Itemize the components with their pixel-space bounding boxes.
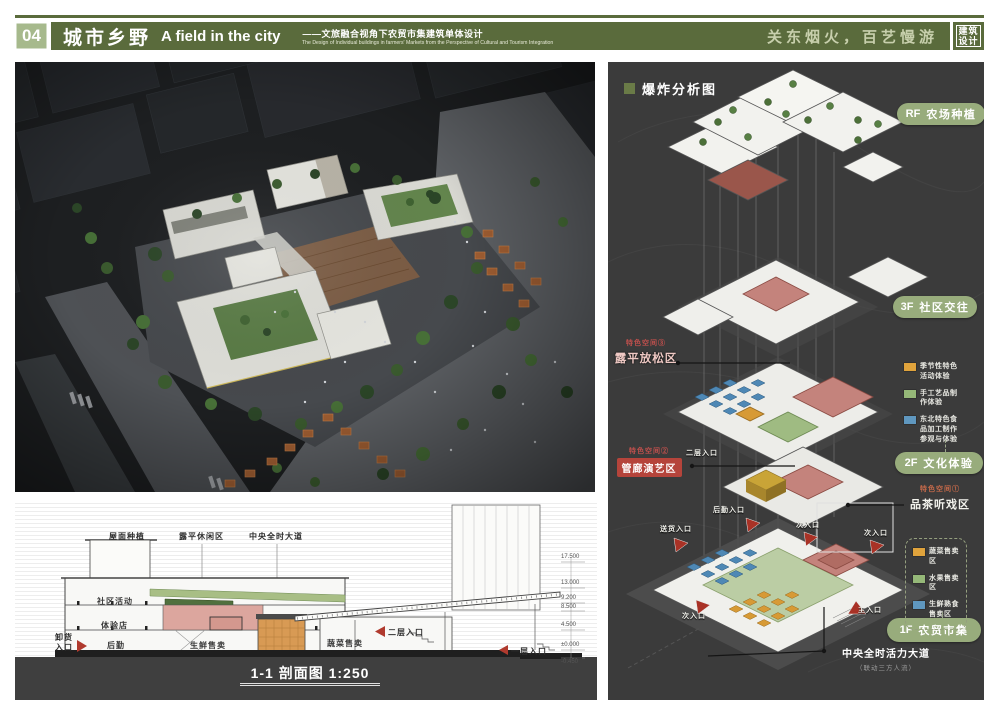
legend-2f: 季节性特色活动体验 手工艺品制作体验 东北特色食品加工制作参观与体验 [904,362,966,452]
elevation-17500: 17.500 [561,554,579,560]
room-community-activity: 社区活动 [97,596,133,607]
title-bullet-square [624,83,635,94]
elevation-13000: 13.000 [561,580,579,586]
second-floor-entrance-label: 二层入口 [388,627,424,638]
room-fresh-food: 生鲜售卖 [190,640,226,651]
entrance-label-second-floor: 二层入口 [686,448,718,458]
title-chinese: 城市乡野 [63,23,151,50]
section-label-roof-planting: 屋面种植 [109,531,145,542]
unloading-entrance-label-line2: 入口 [55,642,73,653]
subtitle-english: The Design of Individual buildings in fa… [302,40,553,45]
floor-pill-2f: 2F 文化体验 [895,452,983,474]
header-band: 城市乡野 A field in the city ——文旅融合视角下农贸市集建筑… [51,22,950,50]
f3-plates [663,257,928,344]
section-title: 1-1 剖面图 1:250 [195,663,425,683]
floor-pill-3f: 3F 社区交往 [893,296,977,318]
section-title-underline [240,683,380,686]
aerial-render-image [15,62,595,492]
legend-chip-orange [904,363,916,371]
exploded-title-text: 爆炸分析图 [642,79,717,98]
central-avenue-annotation: 中央全时活力大道 （联动三方人流） [828,645,944,672]
legend-chip-green [904,390,916,398]
elevation-minus-0450: -0.450 [561,659,578,665]
room-vegetable: 蔬菜售卖 [327,638,363,649]
legend-2f-item-food-process: 东北特色食品加工制作参观与体验 [904,415,966,444]
elevation-9200: 9.200 [561,595,576,601]
room-logistics: 后勤 [107,640,125,651]
title-english: A field in the city [161,28,280,45]
presentation-board: 04 城市乡野 A field in the city ——文旅融合视角下农贸市… [0,0,999,708]
badge-line-1: 建筑 [958,26,978,36]
legend-1f-item-fruit: 水果售卖区 [913,574,961,594]
aerial-render-illustration [15,62,595,492]
exploded-analysis-panel: 爆炸分析图 RF 农场种植 3F 社区交往 2F 文化体验 1F 农贸市集 季节… [608,62,984,700]
entrance-label-secondary-3: 次入口 [682,611,706,621]
legend-2f-item-seasonal: 季节性特色活动体验 [904,362,966,382]
room-experience-shop: 体验店 [101,620,128,631]
special-space-3: 特色空间③ 露平放松区 [610,338,682,366]
elevation-0000: ±0.000 [561,642,579,648]
elevation-4500: 4.500 [561,622,576,628]
discipline-badge: 建筑 设计 [953,22,984,50]
subtitle-chinese: ——文旅融合视角下农贸市集建筑单体设计 [302,27,594,40]
section-label-central-avenue: 中央全时大道 [249,531,303,542]
entrance-label-logistics: 后勤入口 [713,505,745,515]
f2-upper-plate [678,362,878,462]
legend-2f-connector [945,440,946,452]
elevation-8500: 8.500 [561,604,576,610]
legend-1f-item-vegetable: 蔬菜售卖区 [913,547,961,567]
entrance-label-main: 主入口 [858,605,882,615]
section-drawing-panel: 屋面种植 露平休闲区 中央全时大道 社区活动 体验店 后勤 生鲜售卖 蔬菜售卖 … [15,500,597,700]
entrance-label-secondary-1: 次入口 [796,520,820,530]
legend-chip-blue [904,416,916,424]
legend-1f: 蔬菜售卖区 水果售卖区 生鲜熟食售卖区 [905,538,967,630]
section-label-terrace-leisure: 露平休闲区 [179,531,224,542]
floor-pill-rf: RF 农场种植 [897,103,984,125]
special-space-2: 特色空间② 管廊演艺区 [616,446,682,477]
slogan-text: 关东烟火，百艺慢游 [767,26,938,47]
legend-1f-connector [942,612,943,618]
badge-line-2: 设计 [958,36,978,46]
first-floor-entrance-label: 一层入口 [511,646,547,657]
exploded-panel-title: 爆炸分析图 [624,79,717,98]
entrance-label-delivery: 送货入口 [660,524,692,534]
page-number: 04 [15,22,48,50]
special-space-1: 特色空间① 品茶听戏区 [905,484,975,512]
legend-chip-green [913,575,925,583]
header-top-rule [15,15,984,18]
subtitle-block: ——文旅融合视角下农贸市集建筑单体设计 The Design of Indivi… [302,27,594,46]
legend-2f-item-handicraft: 手工艺品制作体验 [904,389,966,409]
legend-chip-orange [913,548,925,556]
legend-1f-item-fresh: 生鲜熟食售卖区 [913,600,961,620]
legend-chip-blue [913,601,925,609]
entrance-label-secondary-2: 次入口 [864,528,888,538]
